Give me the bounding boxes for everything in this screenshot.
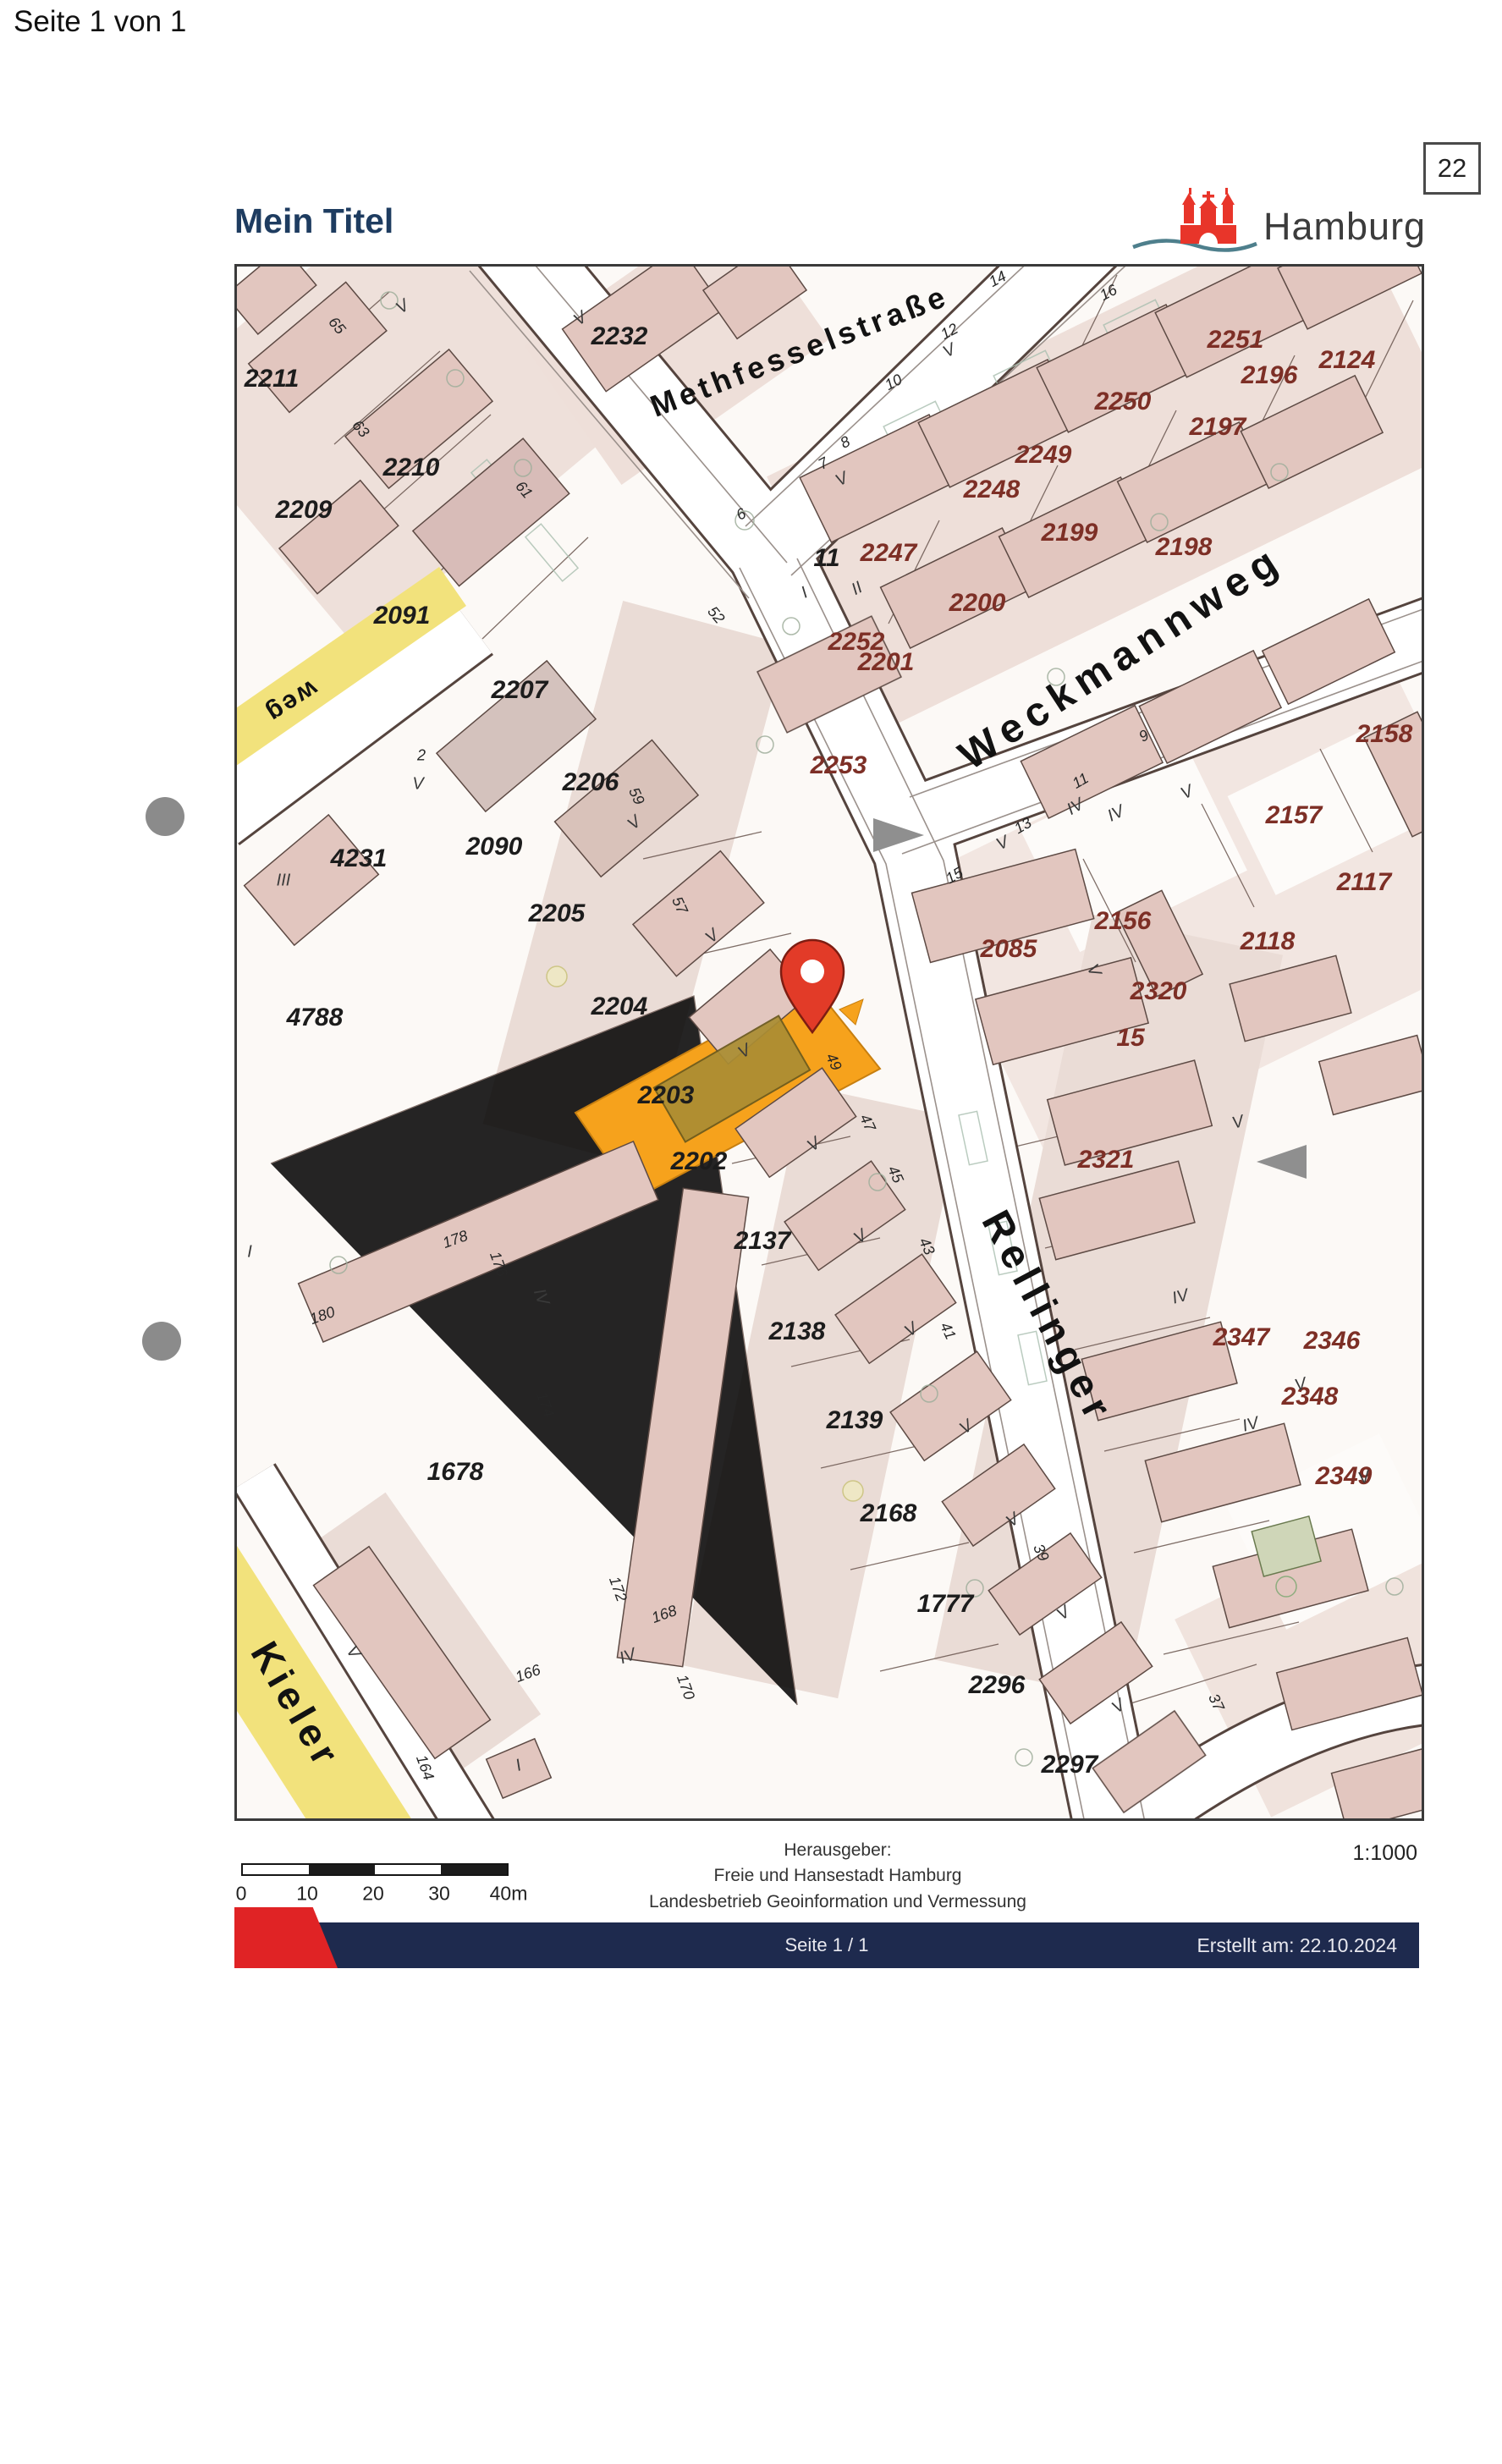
floor-count-label: V (701, 926, 723, 948)
page-title: Mein Titel (234, 201, 393, 241)
floor-count-label: V (1293, 1374, 1309, 1396)
printed-map-page: Seite 1 von 1 22 Mein Titel Hamburg (0, 0, 1502, 2464)
floor-count-label: II (849, 578, 867, 600)
map-scale-ratio: 1:1000 (1303, 1841, 1417, 1866)
scale-tick-label: 0 (236, 1883, 247, 1906)
corner-page-badge: 22 (1423, 142, 1481, 195)
floor-count-label: IV (529, 1286, 553, 1308)
floor-count-label: I (513, 1756, 524, 1776)
floor-count-label: V (393, 296, 413, 318)
scale-tick-label: 10 (296, 1883, 318, 1906)
floor-count-label: V (804, 1134, 824, 1156)
floor-count-label: V (940, 340, 960, 363)
scale-bar (241, 1863, 509, 1876)
floor-count-label: V (1109, 1696, 1129, 1718)
publisher-line: Freie und Hansestadt Hamburg (542, 1863, 1134, 1889)
floor-count-label: V (993, 833, 1012, 855)
floor-count-label: V (734, 1041, 754, 1064)
floor-count-label: I (798, 584, 812, 603)
floor-count-label: V (1178, 782, 1197, 805)
scale-tick-label: 40m (490, 1883, 528, 1906)
floor-count-label: IV (1064, 795, 1087, 819)
floor-count-label: III (277, 872, 291, 891)
floor-count-label: I (247, 1243, 252, 1262)
floor-count-label: V (850, 1226, 871, 1248)
footer-bar: Seite 1 / 1 Erstellt am: 22.10.2024 (234, 1922, 1419, 1968)
cadastral-map: MethfesselstraßeWeckmannwegRellingerKiel… (234, 264, 1424, 1821)
publisher-line: Herausgeber: (542, 1838, 1134, 1863)
floor-count-label: V (342, 1642, 364, 1663)
scale-bar-ticks: 010203040m (241, 1885, 512, 1911)
publisher-line: Landesbetrieb Geoinformation und Vermess… (542, 1889, 1134, 1915)
scale-tick-label: 20 (362, 1883, 384, 1906)
floor-count-label: IV (1104, 802, 1127, 827)
floor-count-label: V (624, 812, 645, 834)
floor-count-label: V (1082, 961, 1105, 980)
floor-count-label: V (833, 469, 852, 492)
floor-count-label: V (412, 775, 423, 795)
brand-name: Hamburg (1263, 205, 1426, 249)
floor-count-label: V (1230, 1112, 1246, 1134)
floor-mark-layer: VVVVVVVVVVVVVVVVVVVVVVIVIVIVIVIVIVIIIIII… (237, 267, 1422, 1818)
publisher-block: Herausgeber: Freie und Hansestadt Hambur… (542, 1838, 1134, 1915)
hamburg-logo: Hamburg (1121, 179, 1426, 264)
floor-count-label: V (1054, 1603, 1074, 1625)
floor-count-label: IV (617, 1645, 639, 1669)
punch-hole (146, 797, 184, 836)
floor-count-label: IV (1241, 1413, 1261, 1436)
corner-page-number: 22 (1438, 153, 1466, 184)
floor-count-label: V (1356, 1467, 1373, 1489)
footer-red-flag (234, 1907, 338, 1968)
floor-count-label: IV (1170, 1285, 1191, 1308)
floor-count-label: V (901, 1319, 922, 1341)
floor-count-label: V (956, 1416, 977, 1438)
footer-created-date: Erstellt am: 22.10.2024 (1197, 1922, 1397, 1968)
floor-count-label: V (570, 308, 591, 330)
punch-hole (142, 1322, 181, 1361)
page-indicator: Seite 1 von 1 (14, 5, 186, 39)
floor-count-label: V (1003, 1510, 1023, 1532)
scale-tick-label: 30 (428, 1883, 450, 1906)
